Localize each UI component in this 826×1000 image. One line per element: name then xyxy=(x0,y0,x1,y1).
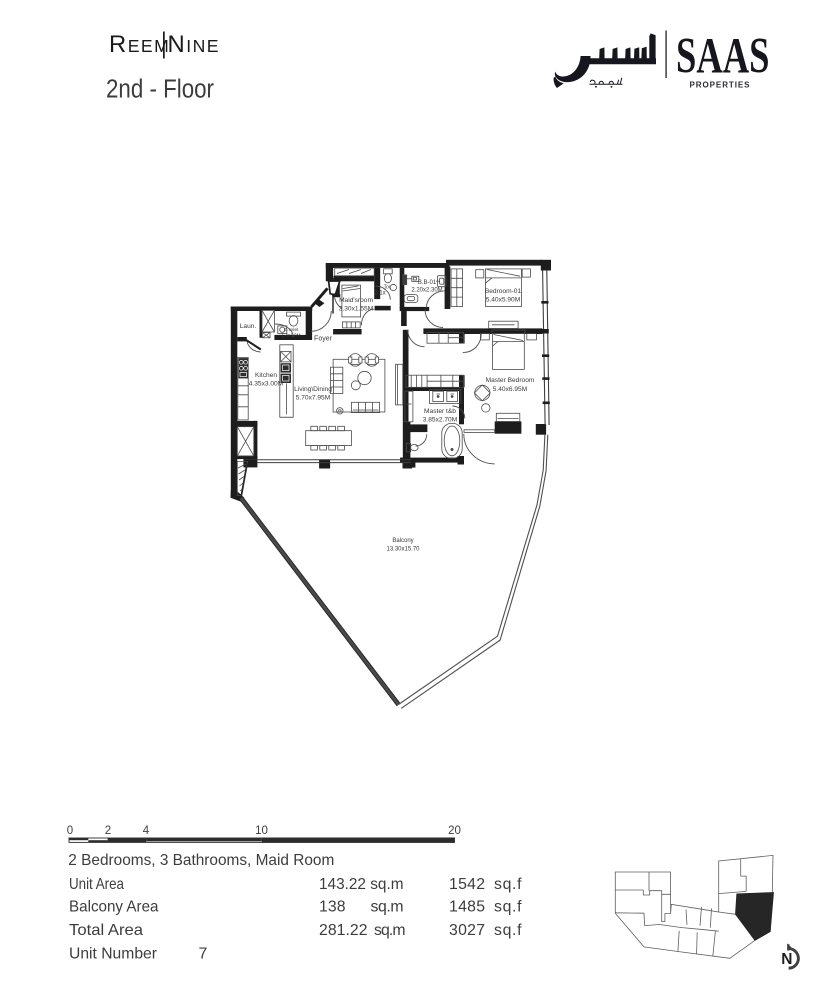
svg-text:sq.f: sq.f xyxy=(494,899,522,916)
svg-text:NINE: NINE xyxy=(168,31,221,58)
svg-text:sq.m: sq.m xyxy=(371,899,404,916)
svg-text:3027: 3027 xyxy=(449,922,485,939)
svg-text:143.22 sq.m: 143.22 sq.m xyxy=(319,876,404,893)
svg-text:Total Area: Total Area xyxy=(69,922,143,939)
svg-text:Unit Area: Unit Area xyxy=(69,876,124,893)
svg-text:Balcony: Balcony xyxy=(392,538,413,544)
svg-text:3.85x2.70M: 3.85x2.70M xyxy=(423,417,457,424)
svg-text:sq.f: sq.f xyxy=(494,876,522,893)
svg-text:2: 2 xyxy=(105,825,111,837)
svg-text:5.70x7.95M: 5.70x7.95M xyxy=(296,395,330,402)
svg-text:2nd - Floor: 2nd - Floor xyxy=(106,76,214,104)
svg-text:1542: 1542 xyxy=(449,876,485,893)
svg-text:Bedroom-01: Bedroom-01 xyxy=(485,288,522,295)
svg-text:Foyer: Foyer xyxy=(314,336,333,343)
svg-text:0: 0 xyxy=(67,825,73,837)
svg-text:4: 4 xyxy=(143,825,150,837)
svg-text:Master t&b: Master t&b xyxy=(424,408,456,415)
svg-text:Unit Number: Unit Number xyxy=(69,946,157,963)
svg-text:Maid'sroom: Maid'sroom xyxy=(339,297,373,304)
svg-text:138: 138 xyxy=(319,899,346,916)
svg-text:20: 20 xyxy=(448,825,461,837)
svg-text:3.30x1.55M: 3.30x1.55M xyxy=(339,306,373,313)
svg-text:N: N xyxy=(781,951,792,968)
svg-text:Master Bedroom: Master Bedroom xyxy=(486,377,535,384)
svg-text:Balcony Area: Balcony Area xyxy=(69,899,159,916)
svg-text:5.40x5.90M: 5.40x5.90M xyxy=(486,297,520,304)
svg-text:REEM: REEM xyxy=(109,31,170,58)
svg-text:Laun.: Laun. xyxy=(240,323,257,330)
svg-text:281.22: 281.22 xyxy=(319,922,368,939)
svg-text:sq.m: sq.m xyxy=(374,922,406,939)
svg-text:G.toilet: G.toilet xyxy=(284,327,299,332)
svg-text:5.40x6.95M: 5.40x6.95M xyxy=(493,386,527,393)
svg-text:PROPERTIES: PROPERTIES xyxy=(690,80,751,89)
svg-text:SAAS: SAAS xyxy=(676,29,770,85)
svg-text:2.1x: 2.1x xyxy=(374,291,385,297)
svg-text:2.20x2.30M: 2.20x2.30M xyxy=(411,288,442,294)
svg-text:Living\Dining: Living\Dining xyxy=(294,386,332,393)
svg-text:1485: 1485 xyxy=(449,899,485,916)
svg-text:7: 7 xyxy=(199,946,208,963)
svg-text:B.B-01: B.B-01 xyxy=(418,280,437,286)
svg-text:1.4x1.9M: 1.4x1.9M xyxy=(282,333,301,338)
svg-text:4.35x3.00M: 4.35x3.00M xyxy=(249,381,283,388)
svg-text:Kitchen: Kitchen xyxy=(255,372,277,379)
svg-text:sq.f: sq.f xyxy=(494,922,522,939)
svg-text:2 Bedrooms, 3 Bathrooms, Maid: 2 Bedrooms, 3 Bathrooms, Maid Room xyxy=(68,852,334,869)
svg-text:13.30x15.70: 13.30x15.70 xyxy=(386,547,420,553)
svg-text:10: 10 xyxy=(255,825,268,837)
